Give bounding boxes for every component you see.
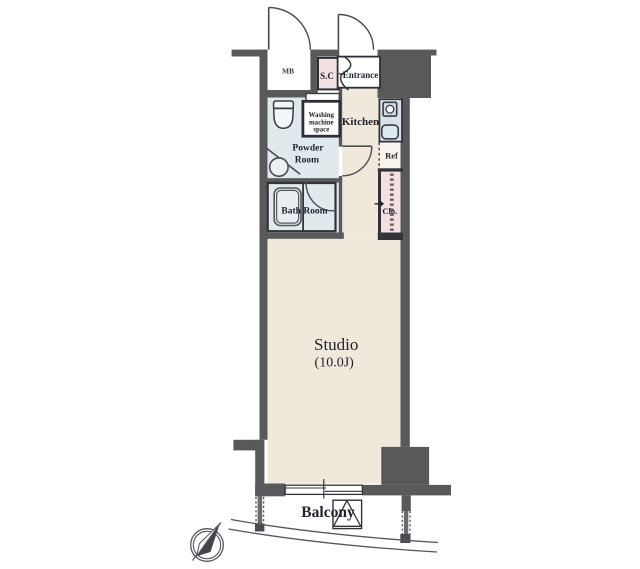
svg-text:space: space (313, 126, 329, 133)
svg-text:Washing: Washing (309, 112, 335, 119)
svg-text:Bath Room: Bath Room (281, 207, 327, 217)
svg-text:S.C: S.C (320, 71, 334, 81)
svg-text:Kitchen: Kitchen (342, 116, 379, 128)
svg-text:MB: MB (282, 66, 294, 75)
svg-text:Ref: Ref (385, 150, 398, 160)
svg-text:(10.0J): (10.0J) (315, 355, 355, 370)
svg-text:Powder: Powder (292, 144, 324, 154)
svg-text:Entrance: Entrance (343, 70, 379, 80)
svg-text:Balcony: Balcony (301, 504, 355, 521)
svg-text:Room: Room (295, 155, 319, 165)
svg-text:Studio: Studio (314, 335, 358, 354)
svg-text:Clo.: Clo. (382, 206, 397, 216)
